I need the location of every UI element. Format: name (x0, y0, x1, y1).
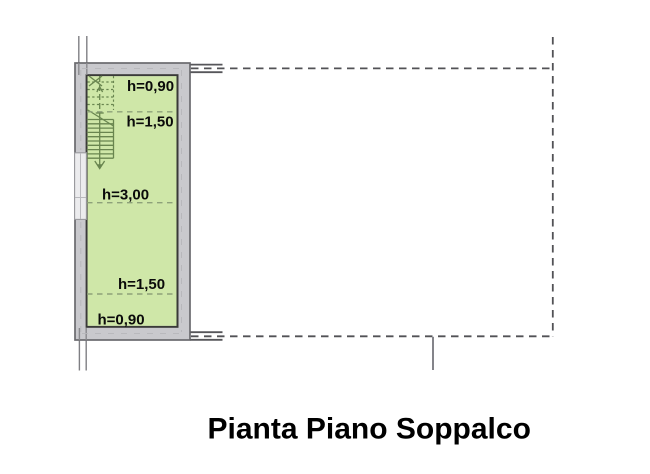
svg-text:h=1,50: h=1,50 (127, 114, 174, 131)
svg-text:h=0,90: h=0,90 (127, 78, 174, 95)
svg-text:h=3,00: h=3,00 (102, 186, 149, 203)
svg-text:h=0,90: h=0,90 (98, 311, 145, 328)
svg-text:h=1,50: h=1,50 (118, 276, 165, 293)
svg-text:Pianta Piano Soppalco: Pianta Piano Soppalco (208, 413, 531, 446)
